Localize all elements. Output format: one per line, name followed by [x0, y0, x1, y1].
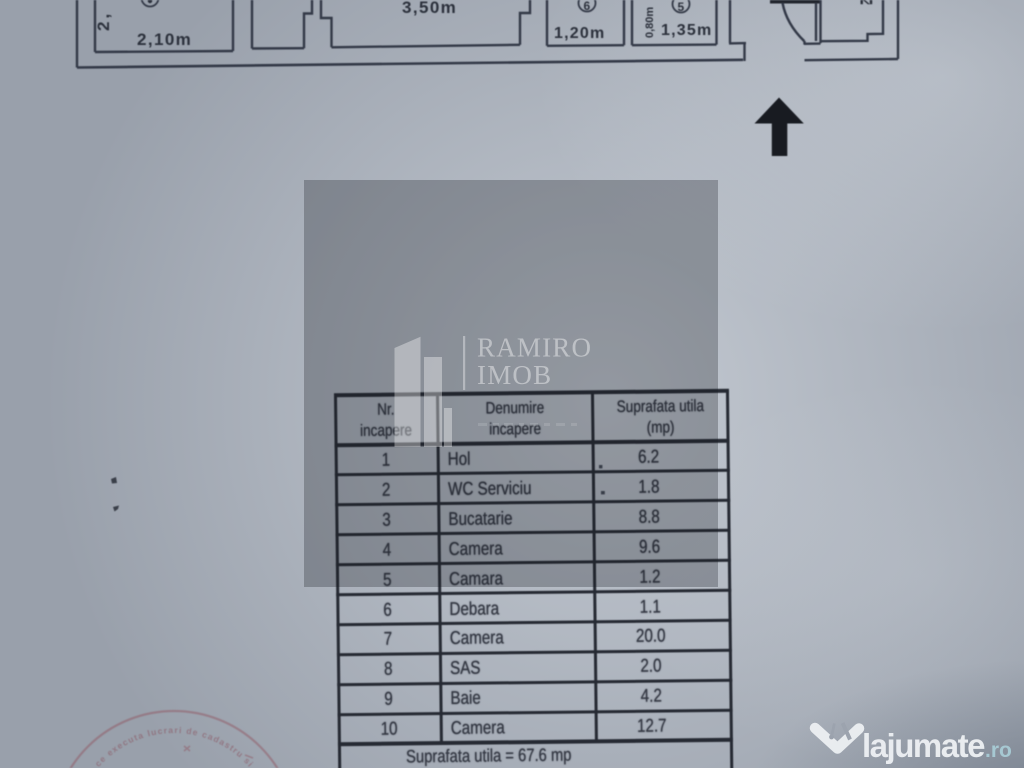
- svg-text:0,80m: 0,80m: [644, 7, 656, 38]
- svg-text:.ro: .ro: [985, 739, 1012, 762]
- svg-text:1,35m: 1,35m: [661, 22, 712, 39]
- svg-text:6: 6: [584, 0, 591, 13]
- svg-text:lajumate: lajumate: [862, 727, 985, 764]
- svg-text:RAMIRO: RAMIRO: [477, 333, 592, 363]
- svg-text:3,50m: 3,50m: [402, 0, 457, 17]
- svg-text:1,20m: 1,20m: [554, 25, 605, 42]
- svg-text:IMOB: IMOB: [477, 360, 552, 390]
- svg-text:5: 5: [678, 0, 685, 14]
- svg-text:ce executa lucrari de cadastru: ce executa lucrari de cadastru si: [93, 725, 256, 768]
